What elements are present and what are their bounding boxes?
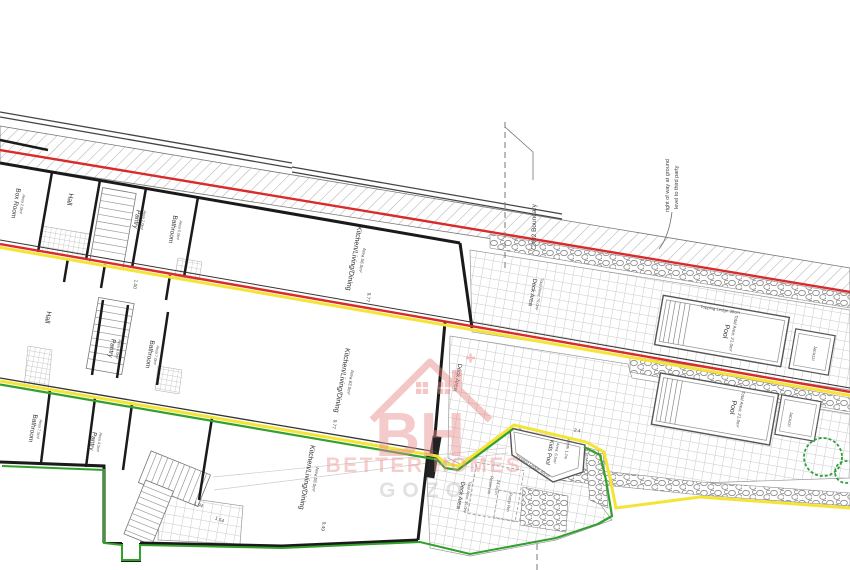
kids-pool-dim: 2.4 [573, 428, 581, 435]
jacuzzi-2 [775, 395, 821, 441]
watermark-location: GOZO [379, 479, 469, 502]
house-window-right [438, 382, 450, 394]
floor-plan-drawing: Box Room Area 2.0m² Hall Pantry Area 2.0… [0, 0, 850, 570]
jacuzzi-1 [789, 329, 835, 375]
house-window-left [416, 382, 428, 394]
right-of-way-note-line1: right of way at ground [665, 159, 671, 212]
right-of-way-note-line2: level to third party [674, 165, 680, 209]
watermark-name: BETTER HOMES [326, 454, 523, 477]
cx02-boundary-label: CX02 Boundary [531, 203, 538, 250]
